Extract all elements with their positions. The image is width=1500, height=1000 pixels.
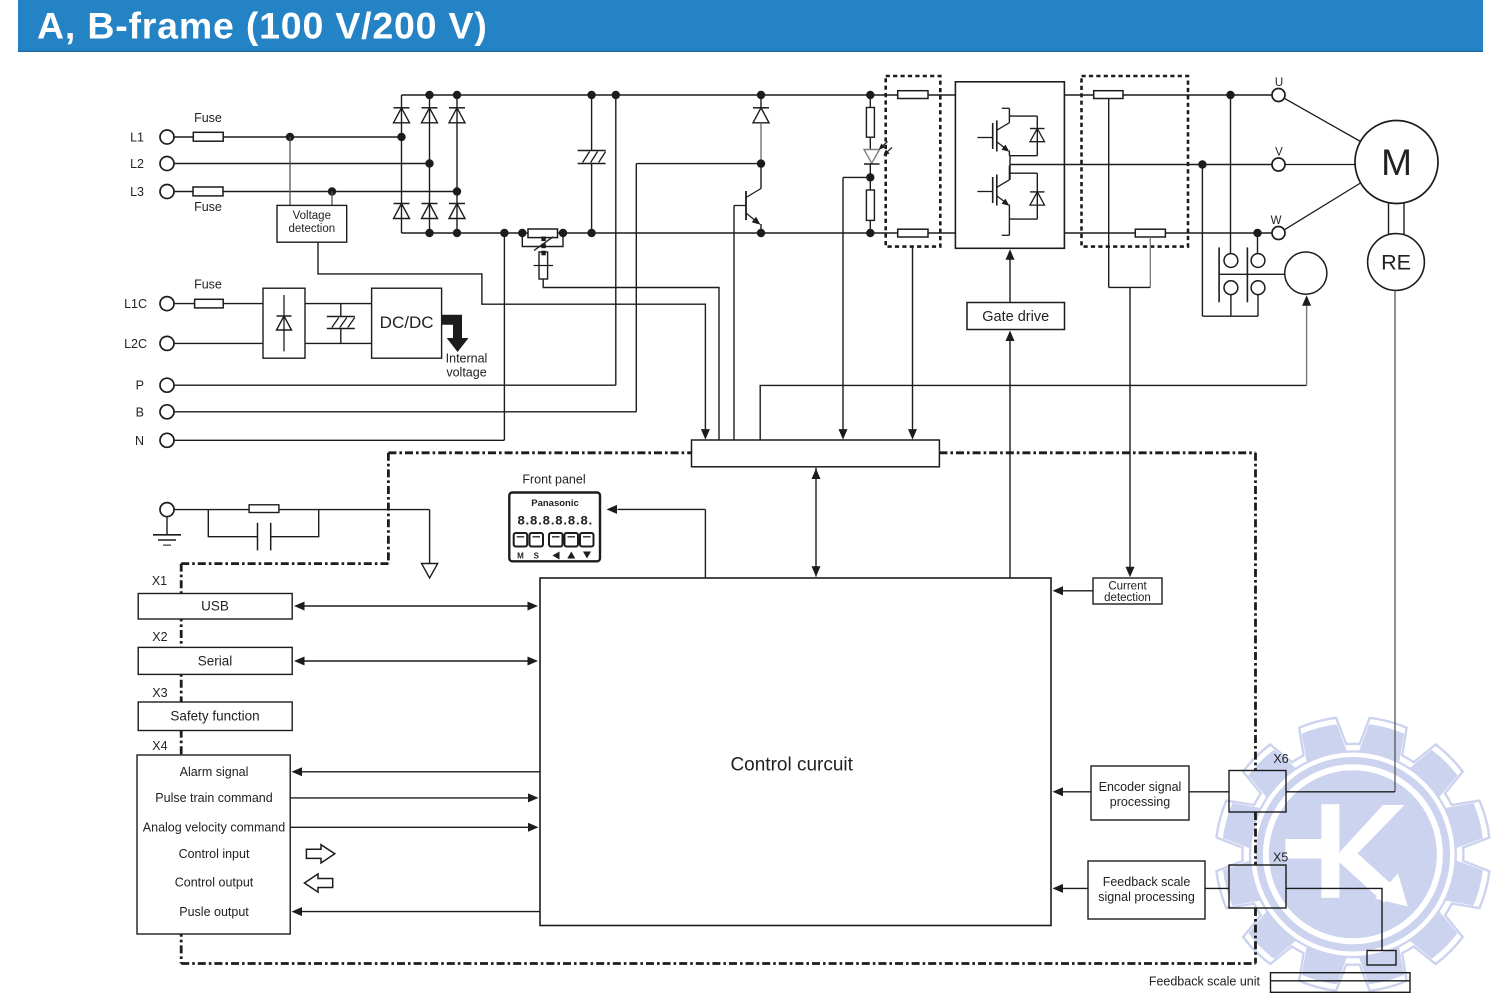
svg-text:Voltage: Voltage xyxy=(293,210,331,222)
svg-text:Gate drive: Gate drive xyxy=(982,309,1049,325)
svg-text:Fuse: Fuse xyxy=(194,200,222,214)
svg-text:USB: USB xyxy=(201,599,229,614)
svg-text:L1C: L1C xyxy=(124,297,147,311)
svg-text:Encoder signal: Encoder signal xyxy=(1099,780,1182,794)
svg-text:Pulse train command: Pulse train command xyxy=(155,791,272,805)
svg-text:P: P xyxy=(136,379,144,393)
svg-text:Serial: Serial xyxy=(198,654,233,669)
svg-text:detection: detection xyxy=(288,223,335,235)
svg-text:Safety function: Safety function xyxy=(170,709,259,724)
svg-text:U: U xyxy=(1275,77,1283,89)
svg-text:Front panel: Front panel xyxy=(522,473,585,487)
svg-text:DC/DC: DC/DC xyxy=(380,313,434,332)
svg-text:Current: Current xyxy=(1108,581,1147,593)
svg-text:signal processing: signal processing xyxy=(1098,890,1195,904)
svg-text:detection: detection xyxy=(1104,592,1151,604)
svg-text:Control curcuit: Control curcuit xyxy=(730,755,853,776)
svg-text:processing: processing xyxy=(1110,795,1170,809)
svg-text:Feedback scale: Feedback scale xyxy=(1103,875,1191,889)
svg-text:Pusle output: Pusle output xyxy=(179,905,249,919)
svg-text:L2C: L2C xyxy=(124,337,147,351)
svg-text:X4: X4 xyxy=(152,739,167,753)
svg-text:X2: X2 xyxy=(152,630,167,644)
svg-text:N: N xyxy=(135,434,144,448)
svg-text:X6: X6 xyxy=(1273,752,1288,766)
svg-text:B: B xyxy=(136,405,144,419)
svg-text:M: M xyxy=(1381,142,1412,183)
svg-text:X3: X3 xyxy=(152,686,167,700)
svg-text:Feedback scale unit: Feedback scale unit xyxy=(1149,975,1261,989)
svg-text:Panasonic: Panasonic xyxy=(531,498,579,509)
svg-text:Control output: Control output xyxy=(175,875,254,889)
svg-text:W: W xyxy=(1271,215,1282,227)
svg-text:8.8.8.8.8.8.: 8.8.8.8.8.8. xyxy=(517,514,593,529)
svg-text:Internal: Internal xyxy=(446,352,488,366)
svg-text:Analog velocity command: Analog velocity command xyxy=(143,821,285,835)
svg-text:L3: L3 xyxy=(130,185,144,199)
svg-text:Alarm signal: Alarm signal xyxy=(180,765,249,779)
svg-text:S: S xyxy=(534,552,540,561)
svg-text:Fuse: Fuse xyxy=(194,111,222,125)
svg-text:L1: L1 xyxy=(130,131,144,145)
svg-text:X1: X1 xyxy=(152,574,167,588)
svg-text:L2: L2 xyxy=(130,157,144,171)
svg-text:Fuse: Fuse xyxy=(194,278,222,292)
svg-text:V: V xyxy=(1275,147,1283,159)
svg-text:A, B-frame (100 V/200 V): A, B-frame (100 V/200 V) xyxy=(37,5,488,47)
svg-text:M: M xyxy=(517,552,524,561)
svg-text:X5: X5 xyxy=(1273,851,1288,865)
svg-text:Control input: Control input xyxy=(179,847,250,861)
svg-text:voltage: voltage xyxy=(446,366,486,380)
svg-text:RE: RE xyxy=(1381,251,1411,275)
